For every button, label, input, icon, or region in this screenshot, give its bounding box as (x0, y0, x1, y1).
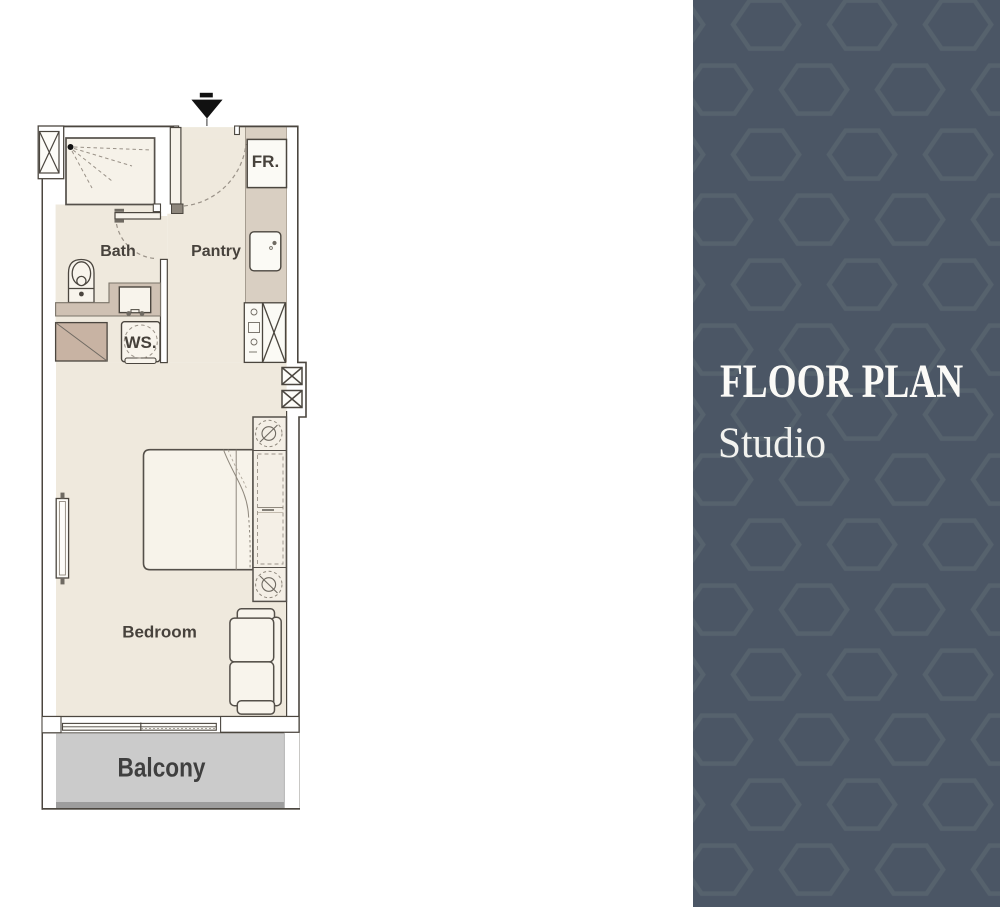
svg-text:FR.: FR. (252, 152, 279, 171)
svg-text:Balcony: Balcony (118, 753, 206, 783)
svg-text:Bedroom: Bedroom (122, 623, 197, 642)
svg-text:Bath: Bath (100, 243, 136, 260)
svg-text:Pantry: Pantry (191, 243, 241, 260)
svg-text:WS.: WS. (124, 333, 156, 352)
